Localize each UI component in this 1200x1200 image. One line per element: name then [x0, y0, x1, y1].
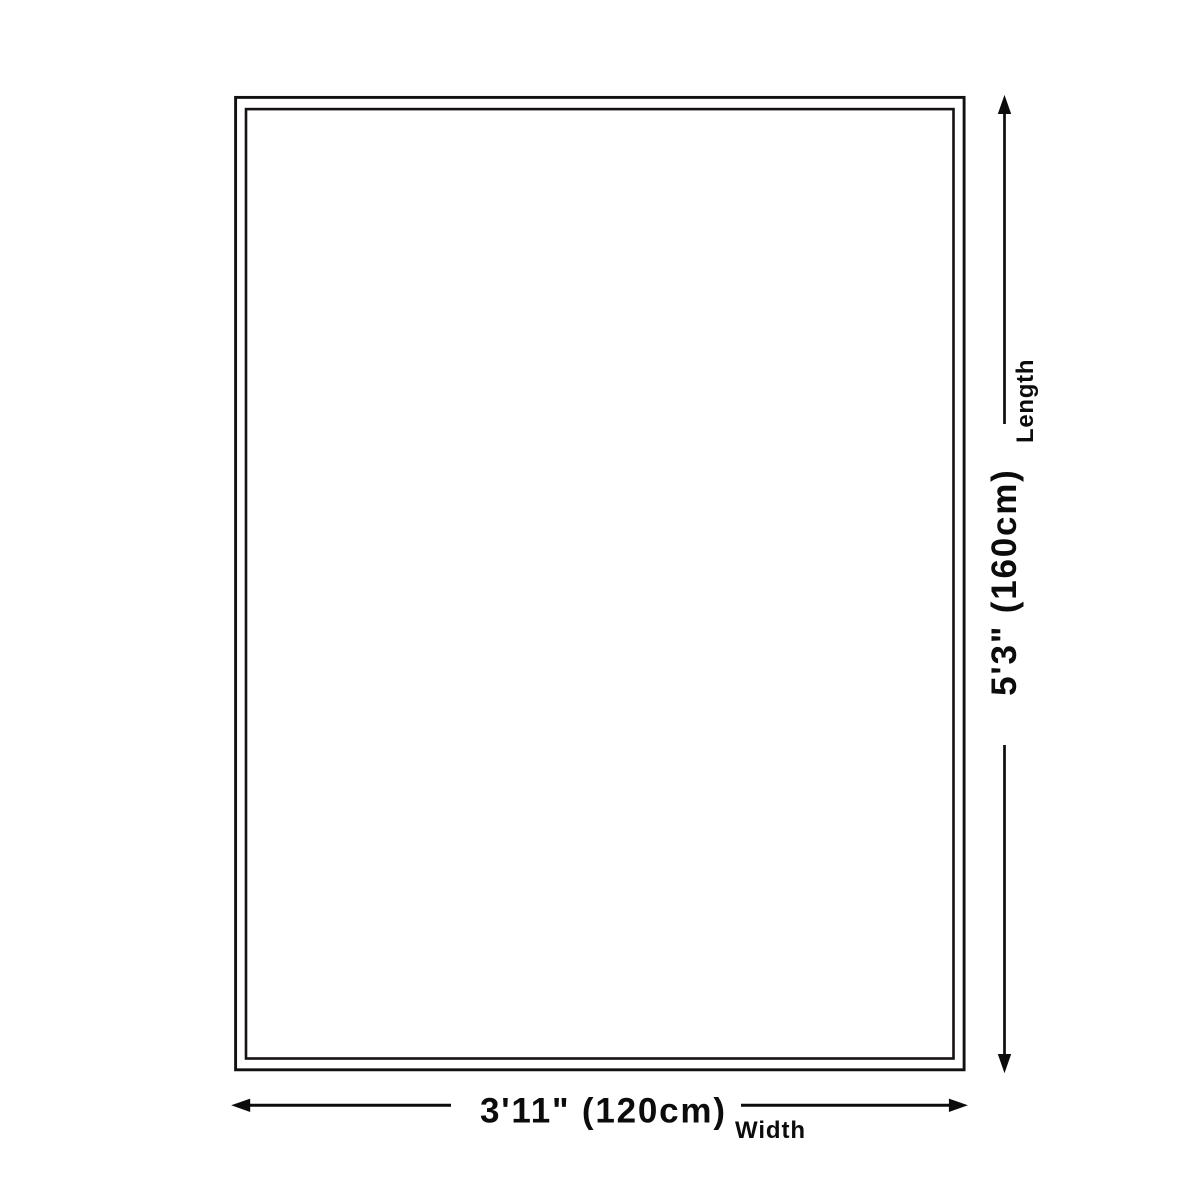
- svg-text:5'3" (160cm): 5'3" (160cm): [985, 468, 1024, 695]
- svg-text:3'11" (120cm): 3'11" (120cm): [480, 1092, 727, 1131]
- svg-text:Length: Length: [1012, 359, 1039, 443]
- svg-text:Width: Width: [735, 1117, 806, 1144]
